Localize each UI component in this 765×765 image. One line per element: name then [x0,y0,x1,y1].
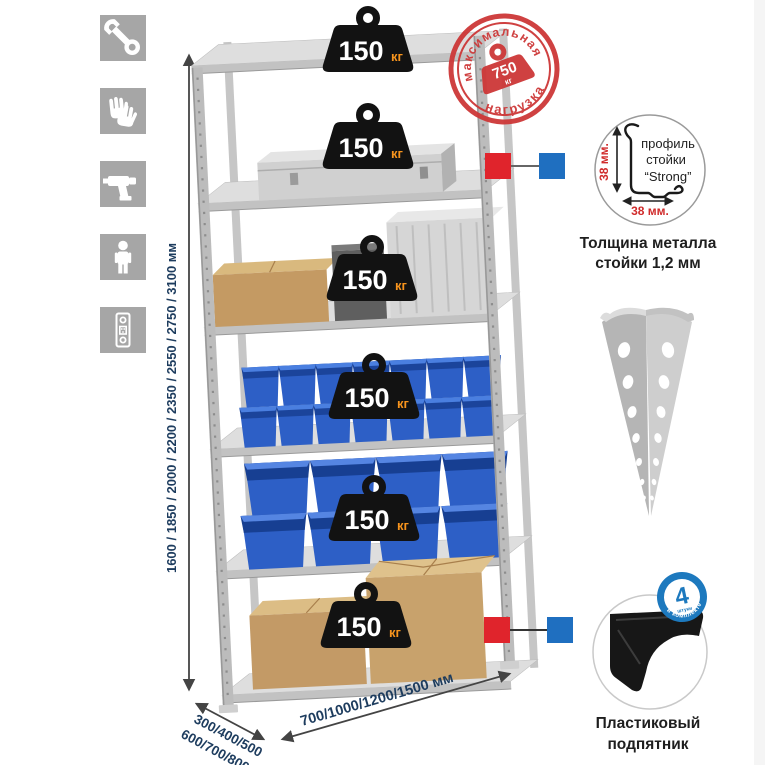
rack-upright-back-left [223,42,262,684]
profile-dim-horizontal-label: 38 мм. [631,204,669,218]
load-value: 150 [338,133,383,163]
max-load-stamp: максимальная нагрузка 750 кг [436,1,572,137]
upright-profile-icon [100,307,146,353]
foot-caption-line1: Пластиковый [596,715,701,732]
angle-post-illustration [600,308,694,516]
load-badge-2: 150 кг [323,107,414,170]
scene-svg: 1600 / 1850 / 2000 / 2200 / 2350 / 2550 … [0,0,765,765]
gloves-icon [100,88,146,134]
profile-caption-line2: стойки 1,2 мм [595,255,700,272]
height-dimension-label: 1600 / 1850 / 2000 / 2200 / 2350 / 2550 … [164,243,179,573]
wrench-icon [100,15,146,61]
load-value: 150 [336,612,381,642]
load-badge-1: 150 кг [323,10,414,73]
foot-caption-line2: подпятник [607,736,688,753]
infographic-canvas: 1600 / 1850 / 2000 / 2200 / 2350 / 2550 … [0,0,765,765]
drill-icon [100,161,146,207]
blue-marker-square [547,617,573,643]
profile-label-line1: профиль [641,136,695,151]
load-value: 150 [338,36,383,66]
load-value: 150 [344,505,389,535]
page-edge-strip [754,0,765,765]
feature-icons-column [100,15,146,353]
profile-label-line3: “Strong” [645,169,692,184]
red-marker-square [484,617,510,643]
profile-dim-vertical-label: 38 мм. [597,143,611,181]
red-marker-square [485,153,511,179]
profile-detail-circle: 38 мм. 38 мм. профиль стойки “Strong” [595,115,705,225]
cardboard-box [212,258,341,327]
load-unit: кг [389,625,402,640]
profile-label-line2: стойки [646,152,686,167]
load-unit: кг [397,396,410,411]
load-value: 150 [344,383,389,413]
load-unit: кг [397,518,410,533]
load-unit: кг [391,146,404,161]
load-unit: кг [391,49,404,64]
load-value: 150 [342,265,387,295]
depth-dimension: 300/400/500 600/700/800 мм [179,704,273,765]
callout-connector-top [485,153,565,179]
person-icon [100,234,146,280]
profile-caption-line1: Толщина металла [580,235,717,252]
height-dimension: 1600 / 1850 / 2000 / 2200 / 2350 / 2550 … [164,56,189,689]
load-unit: кг [395,278,408,293]
blue-marker-square [539,153,565,179]
